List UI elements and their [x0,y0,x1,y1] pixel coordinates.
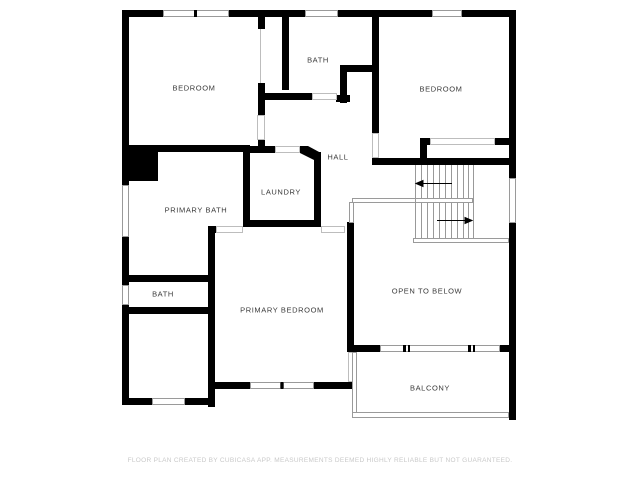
room-label-hall: HALL [327,153,348,162]
arrow-left-icon [416,181,423,187]
floor-plan-canvas: BEDROOM BATH BEDROOM HALL LAUNDRY PRIMAR… [0,0,640,480]
floor-plan-drawing [0,0,640,480]
room-label-primary-bath: PRIMARY BATH [165,206,228,215]
room-label-balcony: BALCONY [410,384,450,393]
room-label-primary-bedroom: PRIMARY BEDROOM [240,306,324,315]
footer-disclaimer: FLOOR PLAN CREATED BY CUBICASA APP. MEAS… [0,457,640,464]
room-label-bedroom-top-right: BEDROOM [420,85,463,94]
room-label-bedroom-top-left: BEDROOM [173,84,216,93]
door-openings [217,29,495,382]
room-label-bath-top-middle: BATH [307,56,329,65]
room-label-open-to-below: OPEN TO BELOW [392,287,462,296]
walls [122,10,516,420]
room-label-laundry: LAUNDRY [261,188,301,197]
stairs-upper-flight [422,165,469,198]
room-label-bath-small: BATH [152,290,174,299]
